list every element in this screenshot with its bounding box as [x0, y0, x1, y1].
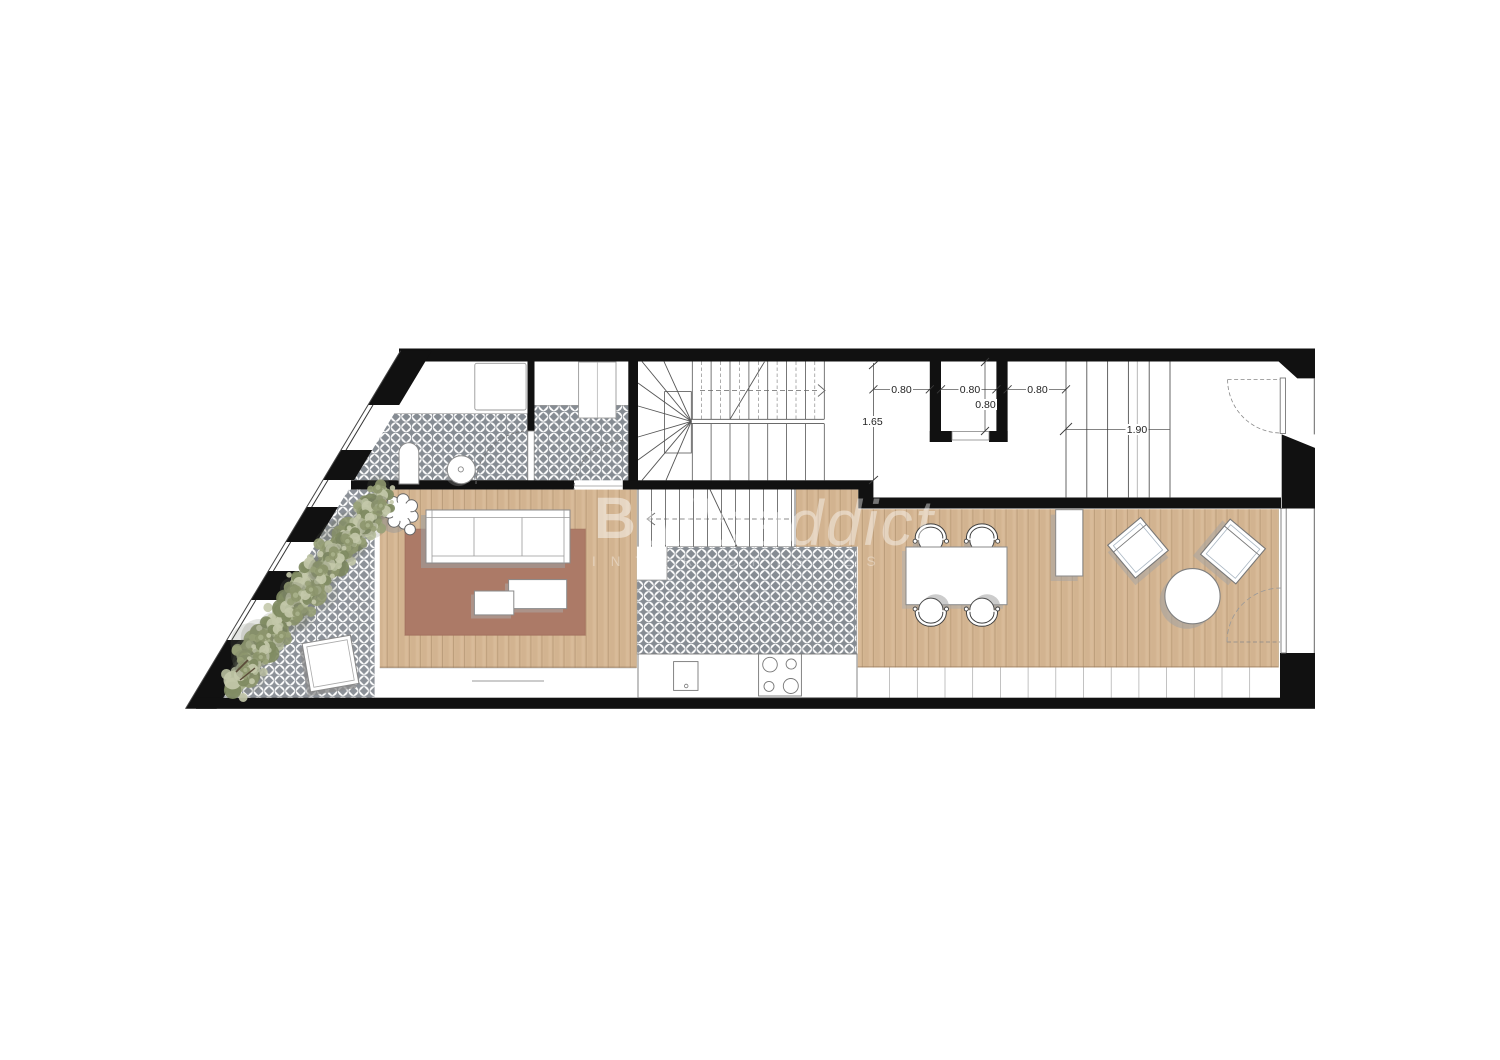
svg-text:1.90: 1.90 [1127, 424, 1148, 436]
svg-text:0.80: 0.80 [960, 384, 981, 396]
svg-text:1.65: 1.65 [862, 416, 883, 428]
svg-text:0.80: 0.80 [975, 399, 996, 411]
svg-text:uildaddict: uildaddict [640, 487, 935, 559]
svg-text:0.80: 0.80 [1027, 384, 1048, 396]
svg-text:B: B [594, 486, 636, 551]
svg-text:0.80: 0.80 [891, 384, 912, 396]
svg-text:INTERIORISTES: INTERIORISTES [592, 554, 891, 569]
